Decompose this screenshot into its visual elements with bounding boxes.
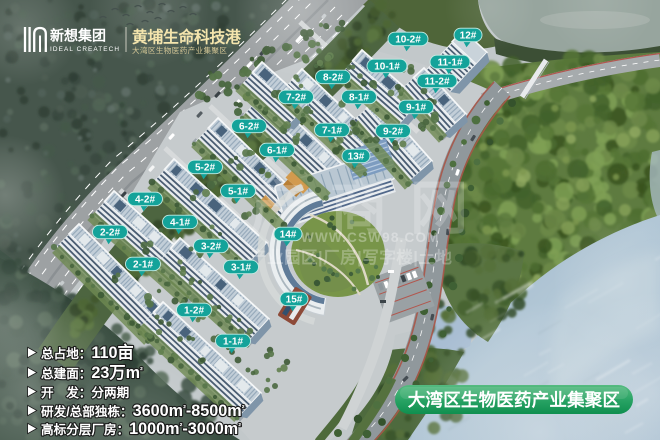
svg-text:9-2#: 9-2# bbox=[383, 127, 403, 138]
svg-text:2-2#: 2-2# bbox=[100, 228, 120, 239]
svg-text:6-1#: 6-1# bbox=[267, 146, 287, 157]
svg-text:10-1#: 10-1# bbox=[374, 62, 400, 73]
svg-text:开 发：分两期: 开 发：分两期 bbox=[41, 385, 129, 400]
svg-text:4-1#: 4-1# bbox=[170, 218, 190, 229]
svg-text:7-2#: 7-2# bbox=[286, 93, 306, 104]
svg-text:WWW.CSW98.COM: WWW.CSW98.COM bbox=[301, 230, 440, 245]
svg-text:8-2#: 8-2# bbox=[323, 73, 343, 84]
svg-text:13#: 13# bbox=[348, 152, 365, 163]
svg-text:大湾区生物医药产业集聚区: 大湾区生物医药产业集聚区 bbox=[132, 45, 227, 55]
svg-text:总建面：23万m²: 总建面：23万m² bbox=[41, 364, 143, 382]
svg-text:产业园区|厂房|写字楼|土地: 产业园区|厂房|写字楼|土地 bbox=[250, 247, 452, 267]
svg-text:6-2#: 6-2# bbox=[239, 122, 259, 133]
svg-text:11-1#: 11-1# bbox=[437, 58, 462, 69]
svg-text:7-1#: 7-1# bbox=[322, 126, 342, 137]
svg-text:1-2#: 1-2# bbox=[184, 306, 204, 317]
svg-text:3-1#: 3-1# bbox=[231, 263, 251, 274]
svg-text:研发/总部独栋：3600m²-8500m²: 研发/总部独栋：3600m²-8500m² bbox=[41, 402, 245, 420]
svg-text:1-1#: 1-1# bbox=[223, 337, 243, 348]
svg-text:2-1#: 2-1# bbox=[133, 260, 153, 271]
svg-text:10-2#: 10-2# bbox=[395, 35, 421, 46]
svg-text:新想集团: 新想集团 bbox=[50, 28, 106, 44]
svg-text:14#: 14# bbox=[280, 230, 297, 241]
svg-text:IDEAL CREATECH: IDEAL CREATECH bbox=[50, 46, 120, 53]
svg-text:8-1#: 8-1# bbox=[349, 93, 369, 104]
svg-text:黄埔生命科技港: 黄埔生命科技港 bbox=[132, 28, 242, 47]
svg-text:12#: 12# bbox=[460, 31, 477, 42]
svg-text:4-2#: 4-2# bbox=[135, 195, 155, 206]
svg-text:15#: 15# bbox=[286, 295, 303, 306]
svg-text:3-2#: 3-2# bbox=[201, 242, 221, 253]
svg-text:11-2#: 11-2# bbox=[424, 77, 449, 88]
svg-text:大湾区生物医药产业集聚区: 大湾区生物医药产业集聚区 bbox=[408, 390, 620, 410]
svg-text:高标分层厂房：1000m²-3000m²: 高标分层厂房：1000m²-3000m² bbox=[41, 420, 241, 438]
svg-text:9-1#: 9-1# bbox=[406, 103, 426, 114]
svg-text:5-1#: 5-1# bbox=[228, 187, 248, 198]
svg-text:5-2#: 5-2# bbox=[195, 163, 215, 174]
